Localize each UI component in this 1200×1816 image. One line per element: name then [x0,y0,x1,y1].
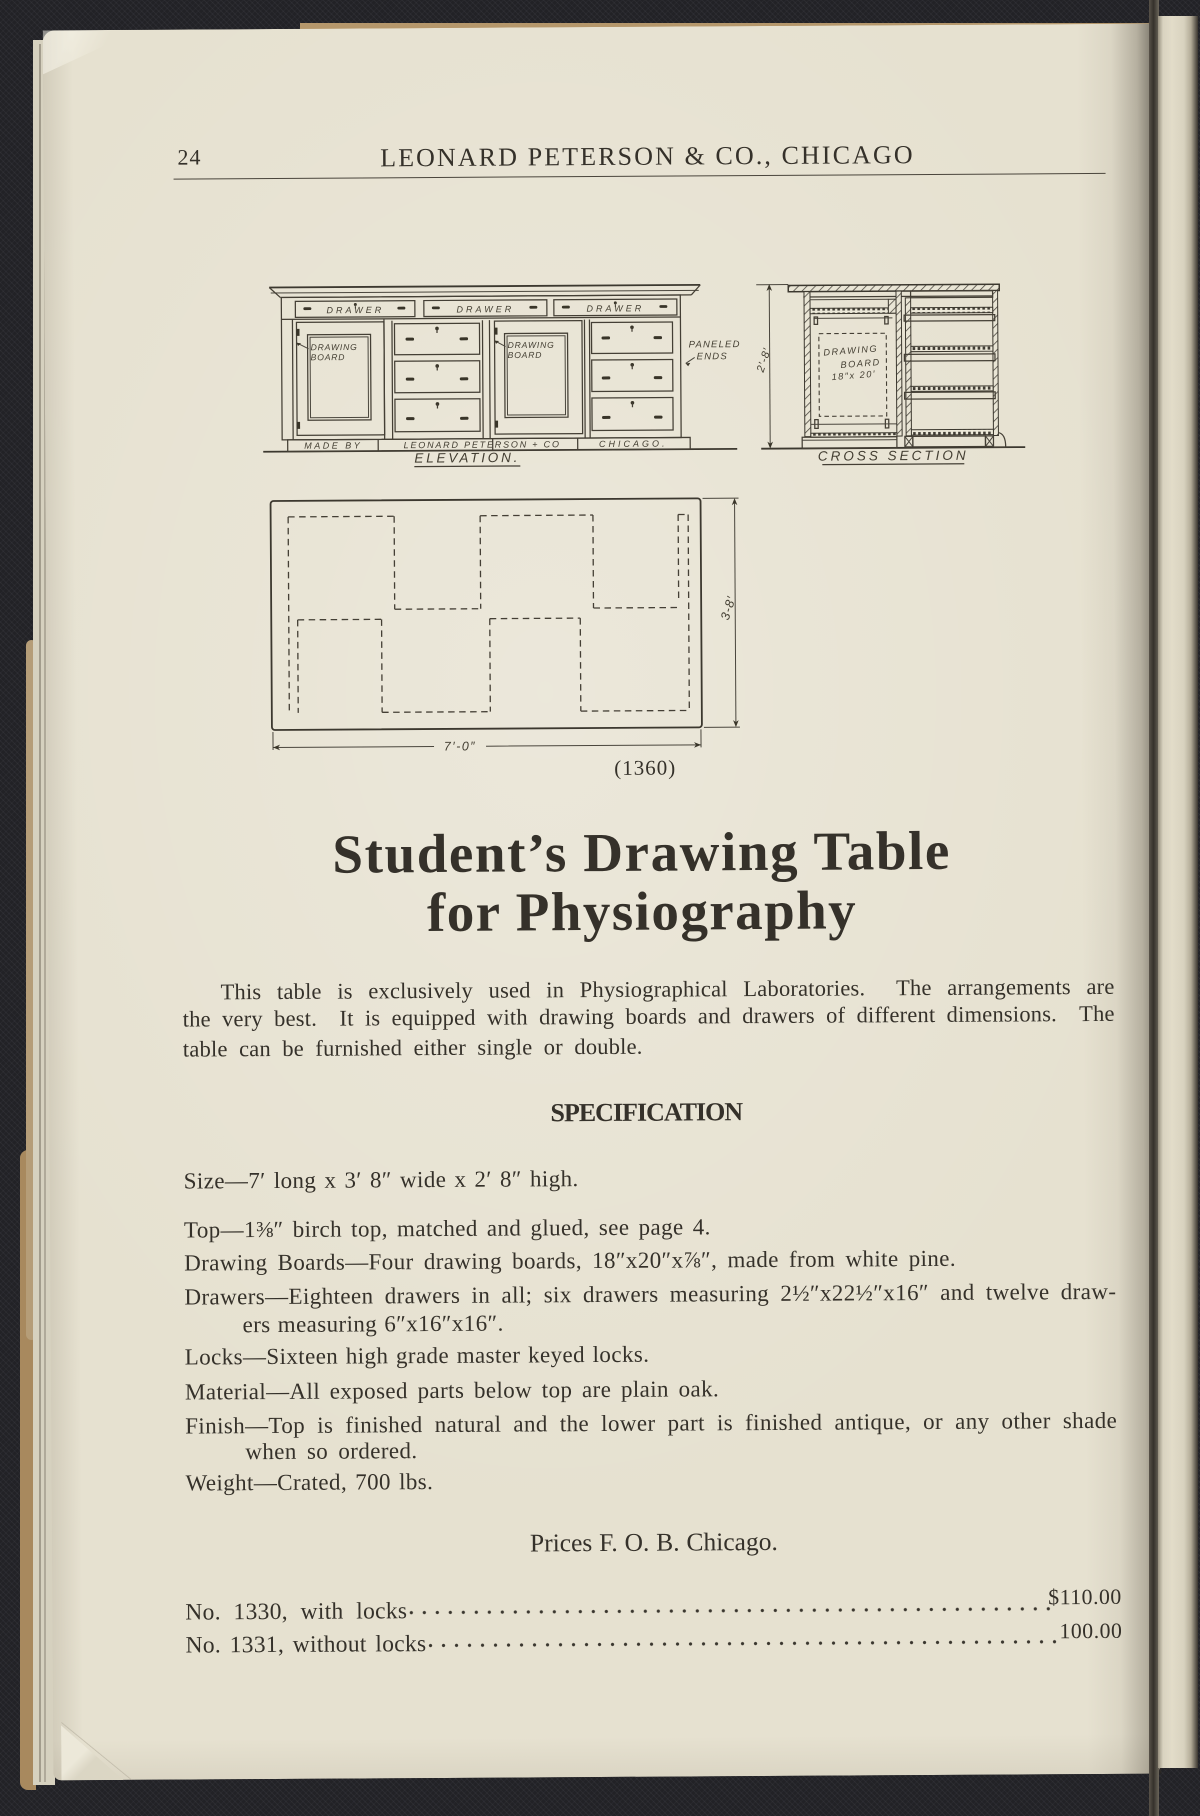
svg-text:(1360): (1360) [614,756,676,780]
svg-text:PANELED: PANELED [689,339,741,350]
svg-text:CROSS SECTION: CROSS SECTION [818,448,969,464]
svg-text:DRAWING: DRAWING [508,340,555,350]
svg-text:DRAWER: DRAWER [586,303,644,313]
svg-text:CHICAGO.: CHICAGO. [599,439,668,449]
svg-text:BOARD: BOARD [311,352,346,362]
svg-text:DRAWING: DRAWING [311,342,358,352]
svg-text:LEONARD PETERSON + CO: LEONARD PETERSON + CO [404,439,561,450]
svg-text:MADE BY: MADE BY [304,440,362,450]
svg-text:DRAWER: DRAWER [456,304,514,314]
svg-text:ELEVATION.: ELEVATION. [414,450,520,466]
svg-text:ENDS: ENDS [697,351,728,362]
svg-text:2′-8′: 2′-8′ [755,346,774,374]
svg-text:BOARD: BOARD [508,350,543,360]
svg-text:7′-0″: 7′-0″ [444,739,476,753]
svg-text:DRAWER: DRAWER [326,305,384,315]
svg-text:DRAWING: DRAWING [823,343,878,357]
svg-text:18″x 20′: 18″x 20′ [831,369,876,382]
